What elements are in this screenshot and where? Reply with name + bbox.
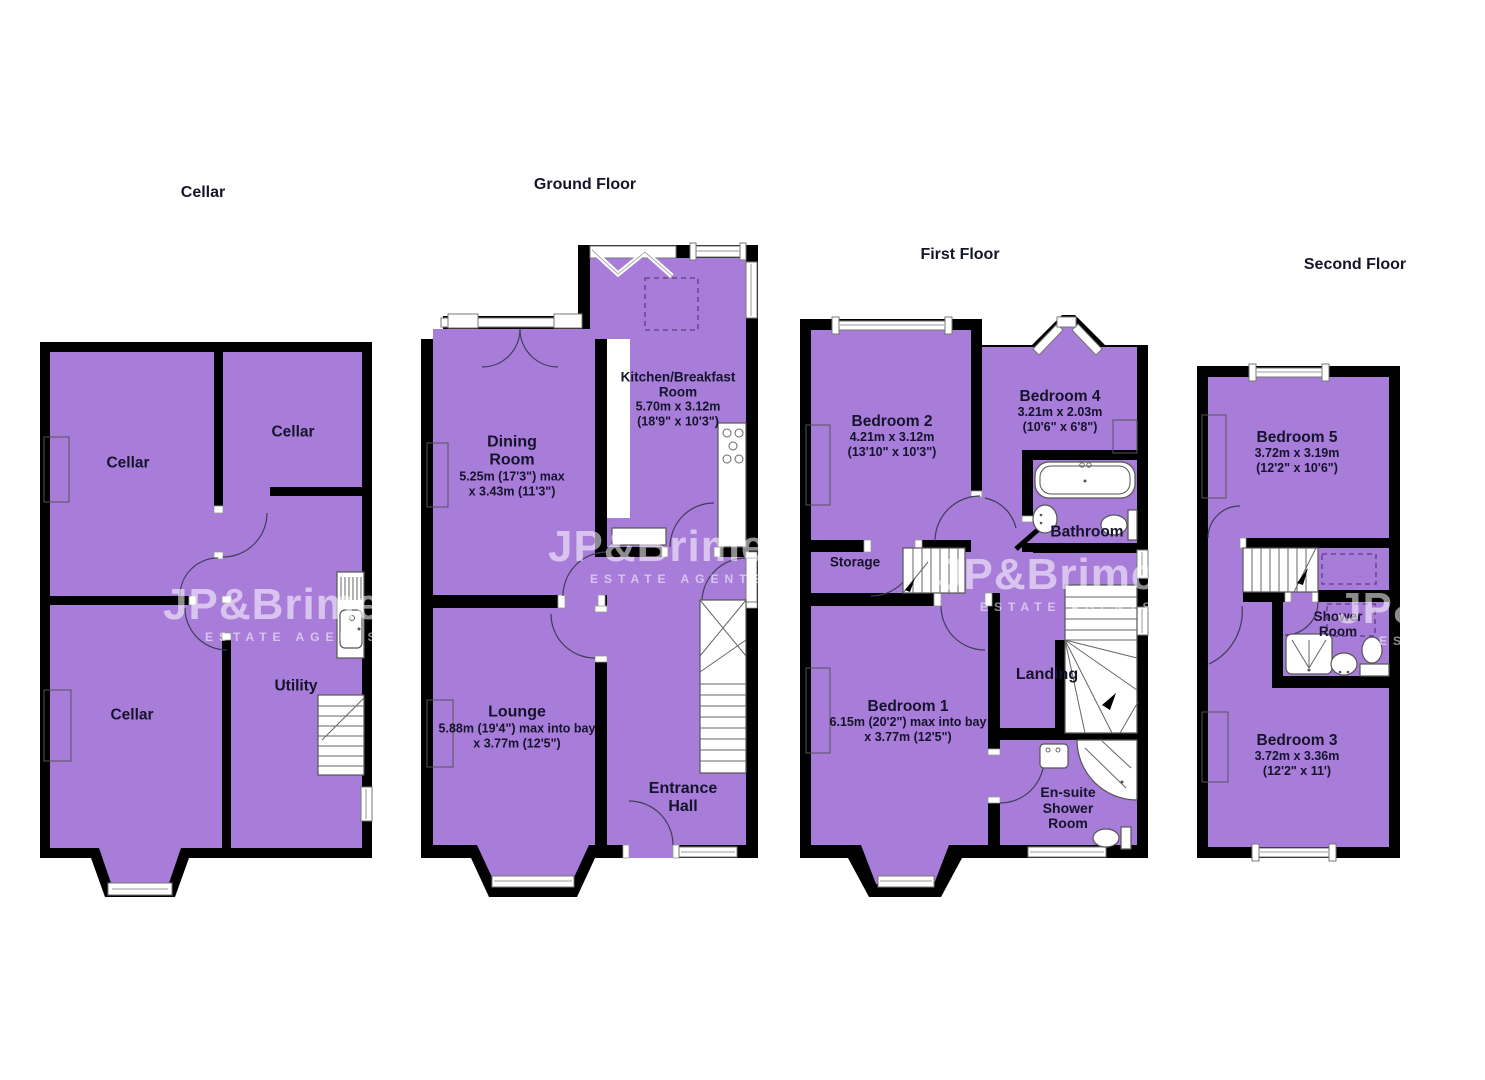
landing-winder-stairs [1065,585,1138,733]
floorplan-drawing [0,0,1485,1080]
room-label-landing: Landing [947,666,1147,684]
room-label-ensuite: En-suite Shower Room [968,785,1168,832]
room-label-entrance-hall: Entrance Hall [583,780,783,816]
shower-tray-icon [1286,634,1332,674]
room-label-cellar-bottom-left: Cellar [32,707,232,724]
room-label-storage: Storage [755,555,955,570]
ensuite-sink-icon [1040,744,1068,768]
second-floor-title: Second Floor [1304,256,1406,274]
second-floor-stairs [1243,548,1318,592]
first-floor-title: First Floor [920,246,999,264]
room-label-bedroom5: Bedroom 5 3.72m x 3.19m (12'2" x 10'6") [1197,429,1397,475]
room-label-shower-room: Shower Room [1238,609,1438,639]
ground-floor-title: Ground Floor [534,176,636,194]
room-label-utility: Utility [196,678,396,695]
entrance-stairs [700,600,746,773]
cellar-title: Cellar [181,184,225,202]
room-label-bedroom4: Bedroom 4 3.21m x 2.03m (10'6" x 6'8") [960,388,1160,434]
bath-icon [1035,462,1135,498]
room-label-bathroom: Bathroom [987,524,1187,541]
floorplan-page: Cellar Ground Floor First Floor Second F… [0,0,1485,1080]
room-label-dining: Dining Room 5.25m (17'3") max x 3.43m (1… [412,434,612,499]
room-label-kitchen: Kitchen/Breakfast Room 5.70m x 3.12m (18… [578,370,778,429]
cellar-stairs [318,695,364,775]
shower-room-sink-icon [1331,653,1357,675]
room-label-cellar-top-left: Cellar [28,455,228,472]
room-label-bedroom3: Bedroom 3 3.72m x 3.36m (12'2" x 11') [1197,732,1397,778]
room-label-bedroom1: Bedroom 1 6.15m (20'2") max into bay x 3… [808,698,1008,744]
utility-sink-icon [337,572,364,658]
room-label-lounge: Lounge 5.88m (19'4") max into bay x 3.77… [417,704,617,751]
room-label-cellar-top-right: Cellar [193,424,393,441]
